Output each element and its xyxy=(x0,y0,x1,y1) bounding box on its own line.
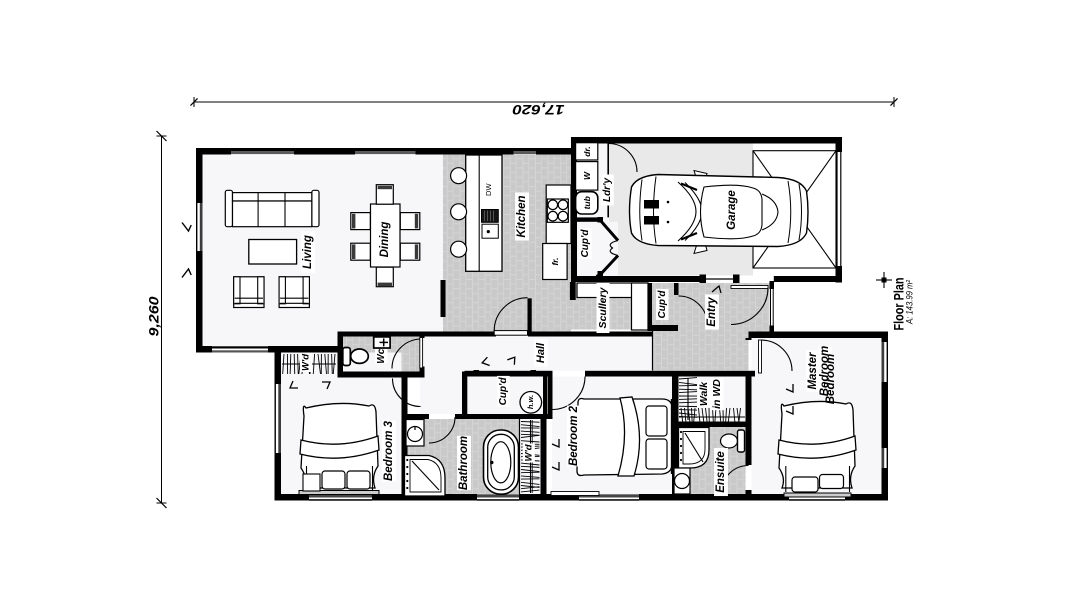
svg-text:17,620: 17,620 xyxy=(512,102,564,118)
svg-text:Garage: Garage xyxy=(726,190,738,230)
svg-text:in WD: in WD xyxy=(711,379,723,409)
svg-text:W: W xyxy=(582,171,592,180)
svg-text:h.w.: h.w. xyxy=(526,395,535,409)
svg-text:Ensuite: Ensuite xyxy=(715,451,727,493)
svg-text:Wc: Wc xyxy=(376,348,387,363)
svg-text:Cup'd: Cup'd xyxy=(580,229,591,258)
svg-text:Master: Master xyxy=(807,352,819,390)
svg-text:W'd: W'd xyxy=(301,354,312,371)
svg-text:W'd: W'd xyxy=(523,444,534,461)
svg-text:Ldr'y: Ldr'y xyxy=(602,178,613,202)
svg-text:tub: tub xyxy=(582,196,592,209)
svg-text:A: 143.99 m²: A: 143.99 m² xyxy=(905,279,915,325)
svg-text:Bedroom: Bedroom xyxy=(825,354,837,404)
svg-text:Dining: Dining xyxy=(379,222,391,258)
svg-text:fr.: fr. xyxy=(550,257,560,265)
svg-text:Walk: Walk xyxy=(698,381,710,406)
svg-text:Kitchen: Kitchen xyxy=(516,195,528,237)
svg-text:Bedroom 3: Bedroom 3 xyxy=(383,420,395,481)
svg-text:Hall: Hall xyxy=(535,342,547,363)
svg-text:Bathroom: Bathroom xyxy=(458,436,470,490)
svg-text:Bedroom 2: Bedroom 2 xyxy=(568,405,580,466)
svg-text:Cup'd: Cup'd xyxy=(498,377,509,406)
svg-text:DW: DW xyxy=(484,183,493,196)
svg-text:Scullery: Scullery xyxy=(597,286,609,328)
svg-text:Entry: Entry xyxy=(706,297,718,327)
svg-text:9,260: 9,260 xyxy=(146,296,162,336)
svg-text:dr.: dr. xyxy=(582,146,592,156)
svg-text:Living: Living xyxy=(302,235,314,269)
svg-text:Cup'd: Cup'd xyxy=(657,290,668,319)
